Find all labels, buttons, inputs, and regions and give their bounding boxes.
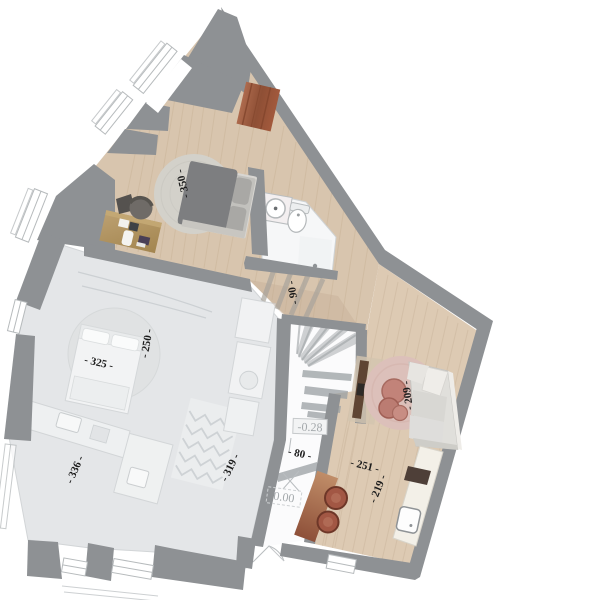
svg-text:0.00: 0.00 <box>273 489 296 506</box>
svg-text:-0.28: -0.28 <box>297 420 322 435</box>
